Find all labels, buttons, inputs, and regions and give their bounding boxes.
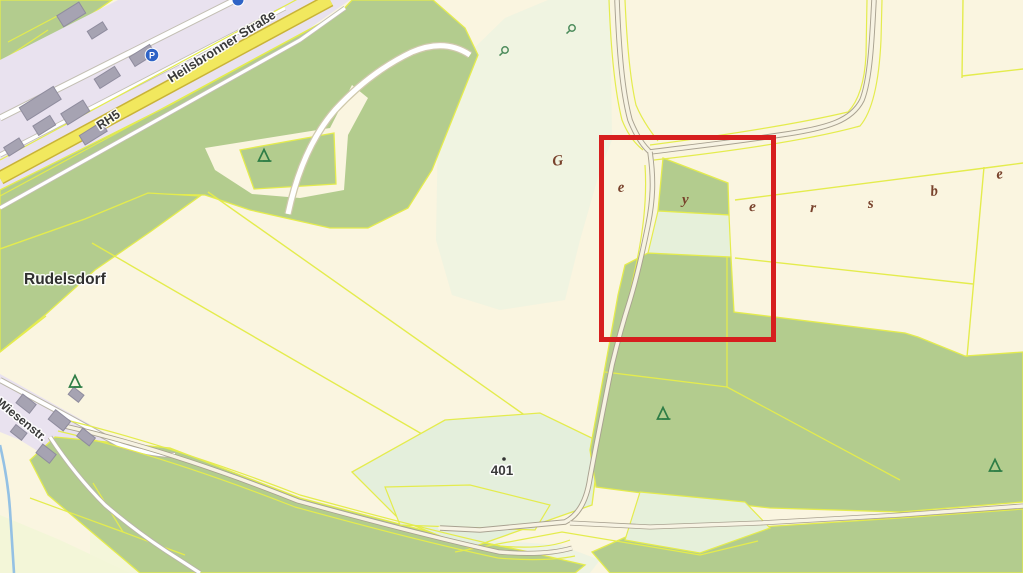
map-canvas[interactable]: P G e y e r s b e 401 Rudelsdorf Heilsbr… [0,0,1023,573]
elevation-label: 401 [491,463,514,478]
area-letter: s [866,196,874,212]
area-letter: y [680,192,689,208]
elevation-dot [502,457,506,461]
map-svg: P G e y e r s b e 401 Rudelsdorf Heilsbr… [0,0,1023,573]
parking-letter: P [149,51,155,61]
area-letter: e [749,199,757,215]
parking-icon: P [145,48,159,62]
place-label: Rudelsdorf [24,271,107,288]
parcel-meadow-middle [648,211,731,257]
area-letter: r [810,200,817,216]
